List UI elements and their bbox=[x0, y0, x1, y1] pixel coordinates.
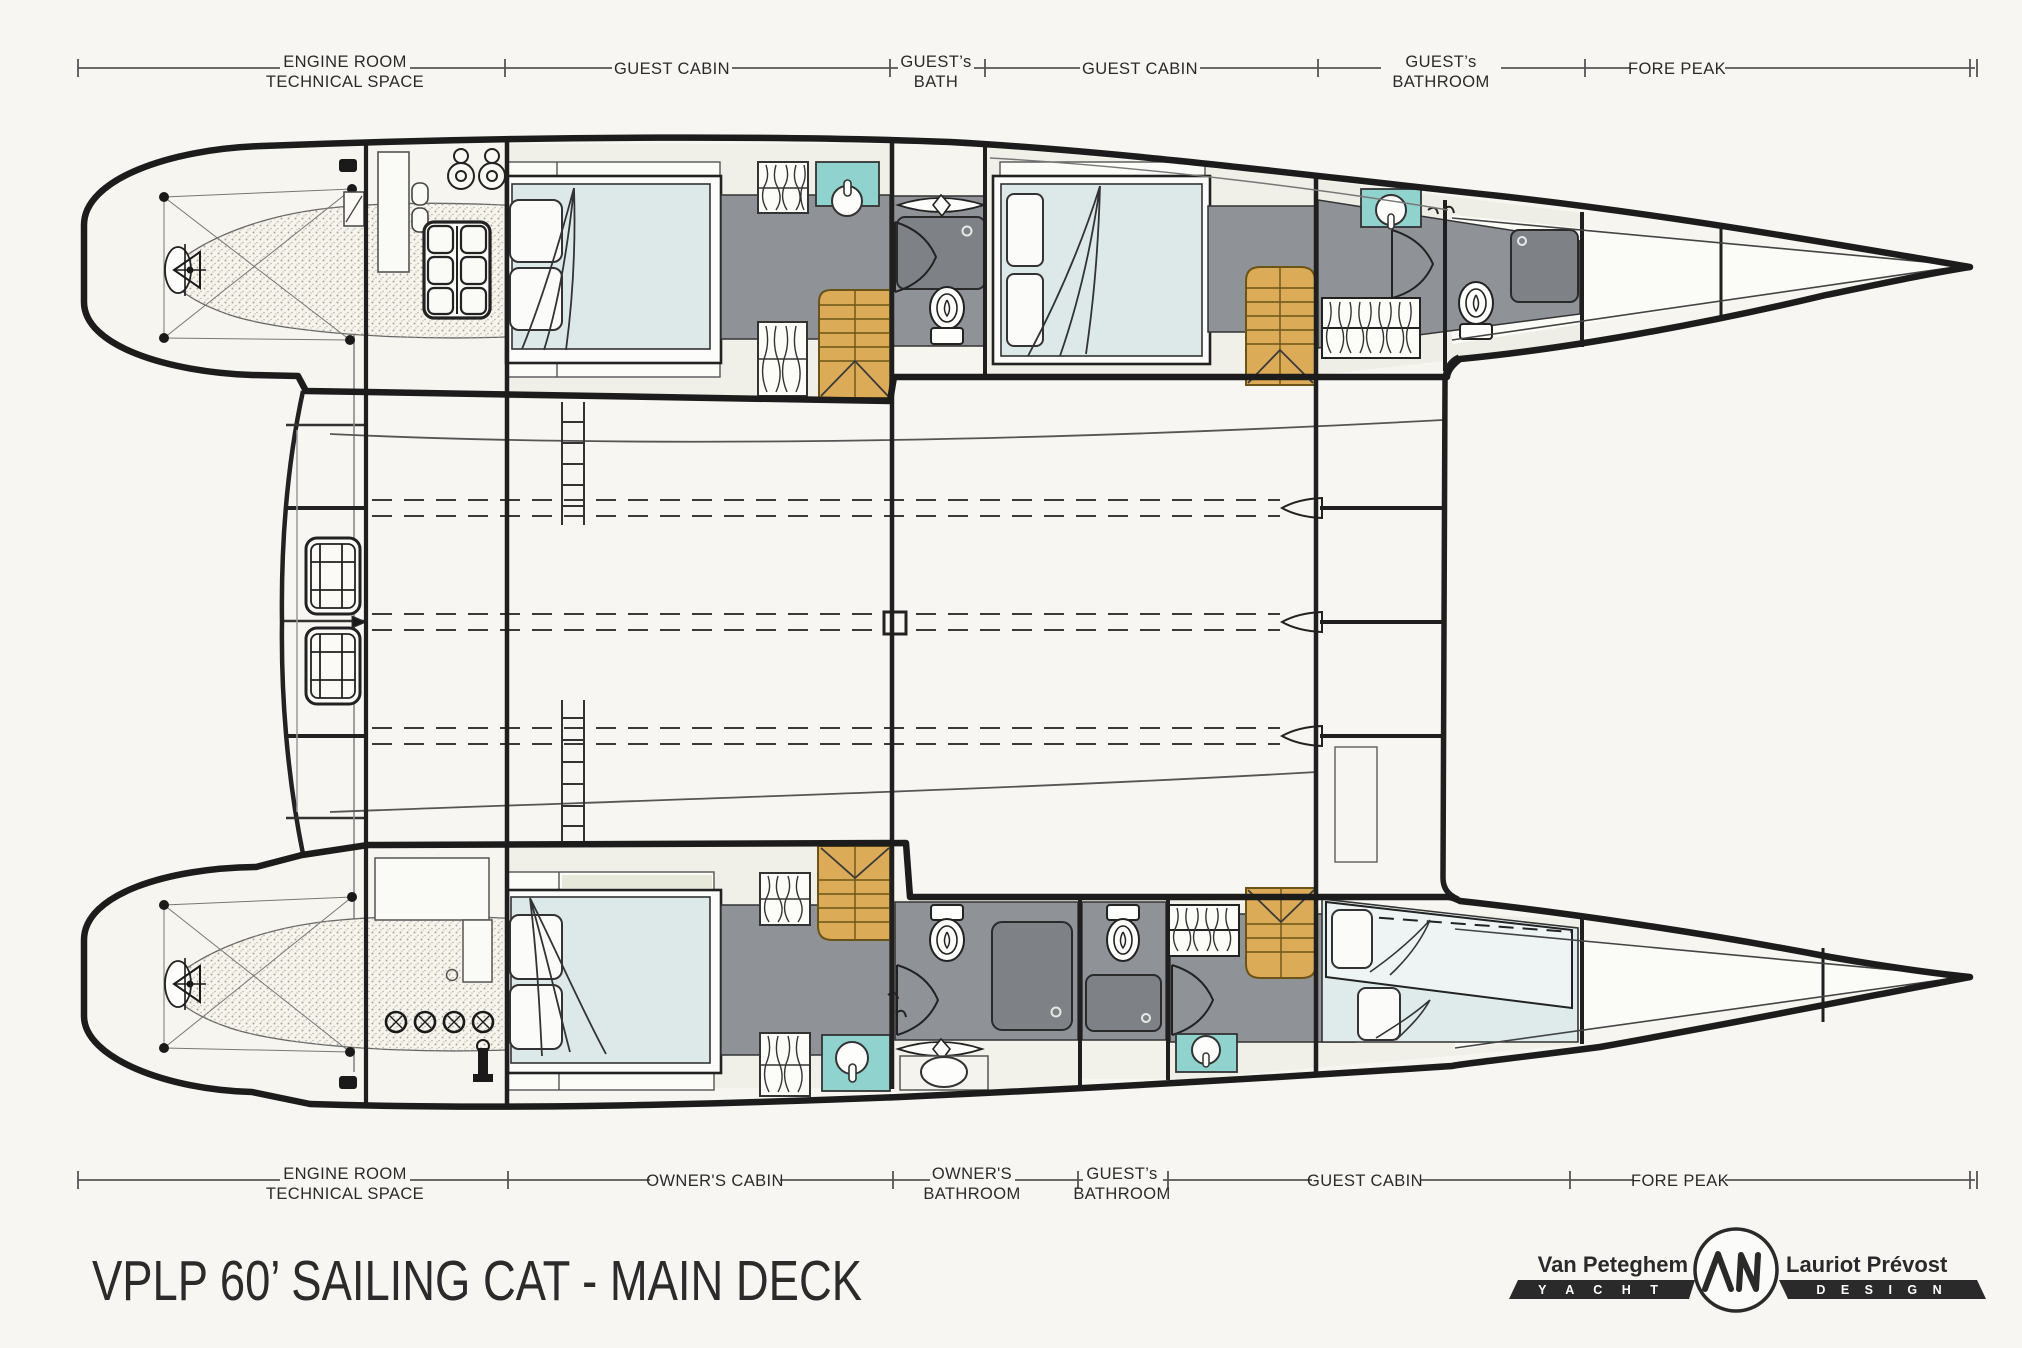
svg-text:BATHROOM: BATHROOM bbox=[1073, 1185, 1170, 1203]
svg-text:Lauriot Prévost: Lauriot Prévost bbox=[1786, 1252, 1948, 1277]
svg-text:ENGINE ROOM: ENGINE ROOM bbox=[283, 1165, 407, 1183]
svg-text:FORE PEAK: FORE PEAK bbox=[1631, 1172, 1729, 1190]
svg-text:Van Peteghem: Van Peteghem bbox=[1538, 1252, 1688, 1277]
svg-text:VPLP 60’ SAILING CAT - MAIN DE: VPLP 60’ SAILING CAT - MAIN DECK bbox=[92, 1249, 862, 1313]
svg-text:TECHNICAL SPACE: TECHNICAL SPACE bbox=[266, 1185, 424, 1203]
svg-text:OWNER'S: OWNER'S bbox=[932, 1165, 1012, 1183]
svg-text:FORE PEAK: FORE PEAK bbox=[1628, 60, 1726, 78]
svg-text:GUEST CABIN: GUEST CABIN bbox=[1082, 60, 1198, 78]
svg-text:TECHNICAL SPACE: TECHNICAL SPACE bbox=[266, 73, 424, 91]
svg-text:GUEST’s: GUEST’s bbox=[1086, 1165, 1157, 1183]
svg-text:GUEST CABIN: GUEST CABIN bbox=[1307, 1172, 1423, 1190]
svg-text:GUEST’s: GUEST’s bbox=[1405, 53, 1476, 71]
svg-text:Y A C H T: Y A C H T bbox=[1538, 1283, 1666, 1297]
svg-text:BATHROOM: BATHROOM bbox=[923, 1185, 1020, 1203]
svg-text:OWNER'S CABIN: OWNER'S CABIN bbox=[646, 1172, 784, 1190]
svg-text:BATH: BATH bbox=[914, 73, 958, 91]
svg-text:GUEST CABIN: GUEST CABIN bbox=[614, 60, 730, 78]
svg-text:GUEST’s: GUEST’s bbox=[900, 53, 971, 71]
svg-text:D E S I G N: D E S I G N bbox=[1816, 1283, 1947, 1297]
svg-text:ENGINE ROOM: ENGINE ROOM bbox=[283, 53, 407, 71]
svg-text:BATHROOM: BATHROOM bbox=[1392, 73, 1489, 91]
